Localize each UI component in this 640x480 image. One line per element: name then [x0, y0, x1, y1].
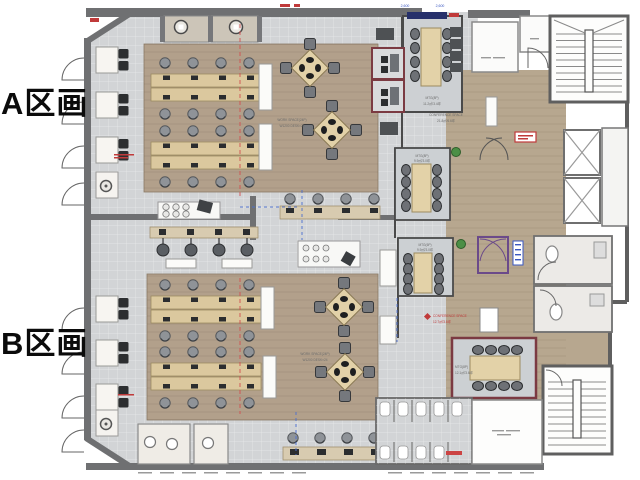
locker-cabinet — [259, 64, 272, 110]
mtg-d-area: 12.1㎡/3.6坪 — [455, 370, 474, 375]
copier — [380, 122, 398, 135]
mtg-c-name: MTG(6P) — [418, 243, 431, 247]
meeting-room-b: MTG(8P) 9.9㎡/3.0坪 — [395, 148, 461, 221]
section-b-washrooms — [138, 424, 228, 464]
top-utility-rooms — [160, 16, 262, 42]
mtg-b-area: 9.9㎡/3.0坪 — [414, 158, 431, 163]
mtg-b-name: MTG(8P) — [415, 154, 428, 158]
kitchen-island-b — [298, 241, 360, 267]
printer — [376, 28, 394, 40]
service-room-1 — [534, 236, 612, 284]
red-mat — [446, 451, 462, 455]
toilet-block — [376, 398, 472, 464]
conference-space-area: 21.8㎡/6.6坪 — [437, 118, 456, 123]
mtg-c-area: 9.9㎡/3.0坪 — [417, 247, 434, 252]
top-dimension-left: 2,600 — [401, 4, 410, 8]
pipe-shaft — [602, 128, 628, 226]
staircase-top-right — [550, 16, 628, 102]
section-a-label: A区画 — [1, 86, 88, 121]
office-floor-plan: WORK SPACE(24P) W1200 DESK×24 WORK SPACE… — [0, 0, 640, 480]
workspace-b-area: W1200 DESK×24 — [302, 358, 327, 362]
mtg-a-name: MTG(8P) — [425, 96, 438, 100]
workspace-b-label: WORK SPACE(24P) — [300, 352, 329, 356]
conference-space-label: CONFERENCE SPACE — [429, 113, 463, 117]
plant — [457, 240, 466, 249]
conference-annex-label: CONFERENCE SPACE — [433, 314, 467, 318]
mtg-a-area: 11.2㎡/3.4坪 — [423, 101, 441, 106]
locker-cabinet — [259, 124, 272, 170]
service-room-2 — [534, 286, 612, 332]
toilet-fixture — [546, 246, 558, 262]
workspace-a-area: W1200 DESK×24 — [279, 124, 304, 128]
pantry-a — [158, 199, 220, 219]
top-dimension-right: 2,600 — [436, 4, 445, 8]
toilet-fixture — [550, 304, 562, 320]
evacuation-sign — [515, 132, 536, 142]
conference-annex-area: 12.7㎡/3.8坪 — [433, 319, 452, 324]
utility-room — [472, 400, 542, 464]
locker-cabinet — [261, 287, 274, 329]
locker-cabinet — [263, 356, 276, 398]
elevator-bank — [564, 128, 628, 226]
workspace-a-label: WORK SPACE(24P) — [277, 118, 306, 122]
plant — [452, 148, 461, 157]
staircase-bottom-right — [543, 366, 612, 454]
section-b-label: B区画 — [1, 326, 88, 361]
meeting-room-d: MTG(8P) 12.1㎡/3.6坪 — [452, 338, 536, 398]
bottom-dimension-marks — [138, 472, 534, 474]
floor-plan-drawing: WORK SPACE(24P) W1200 DESK×24 WORK SPACE… — [0, 0, 640, 480]
projection-screen — [407, 12, 447, 19]
mtg-d-name: MTG(8P) — [455, 365, 468, 369]
locker-cabinet — [486, 97, 497, 126]
